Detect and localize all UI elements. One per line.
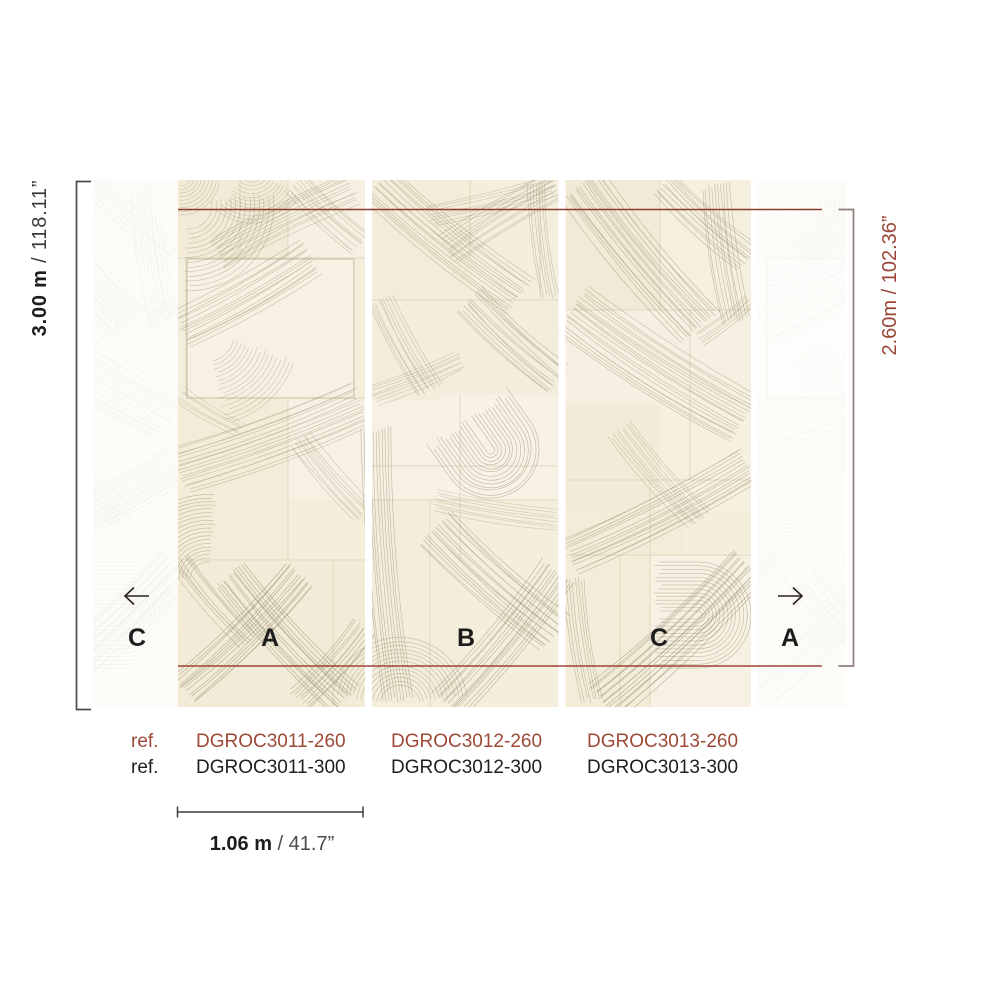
svg-text:1.06 m / 41.7”: 1.06 m / 41.7” — [210, 833, 335, 855]
svg-text:DGROC3013-260: DGROC3013-260 — [587, 731, 738, 752]
svg-text:ref.: ref. — [131, 757, 158, 778]
svg-text:DGROC3012-300: DGROC3012-300 — [391, 757, 542, 778]
svg-text:DGROC3013-300: DGROC3013-300 — [587, 757, 738, 778]
svg-text:A: A — [261, 624, 279, 652]
svg-text:DGROC3011-260: DGROC3011-260 — [196, 731, 346, 752]
svg-text:C: C — [128, 624, 146, 652]
svg-text:3.00 m / 118.11”: 3.00 m / 118.11” — [29, 180, 51, 337]
svg-text:DGROC3012-260: DGROC3012-260 — [391, 731, 542, 752]
svg-text:B: B — [457, 624, 475, 652]
svg-text:C: C — [650, 624, 668, 652]
svg-text:2.60m / 102.36”: 2.60m / 102.36” — [879, 215, 901, 355]
svg-text:DGROC3011-300: DGROC3011-300 — [196, 757, 346, 778]
svg-text:A: A — [781, 624, 799, 652]
svg-text:ref.: ref. — [131, 731, 158, 752]
